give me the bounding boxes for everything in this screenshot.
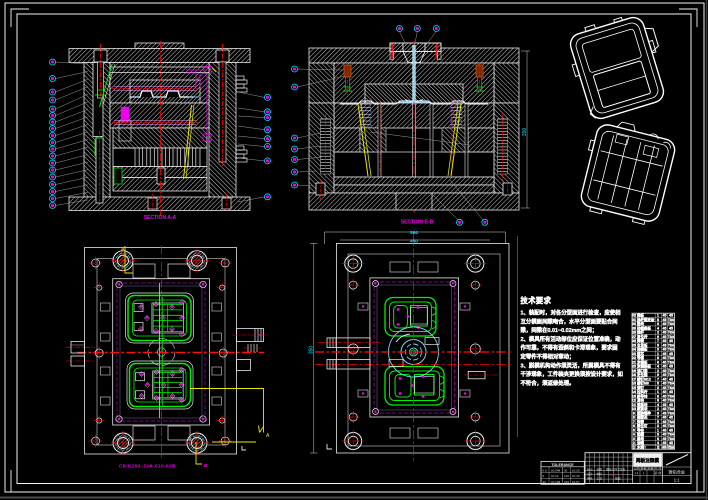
svg-text:动模板: 动模板 (637, 347, 648, 352)
svg-text:更改文件号: 更改文件号 (606, 467, 620, 471)
svg-text:±0.168: ±0.168 (551, 480, 560, 484)
svg-text:垫圈: 垫圈 (637, 432, 645, 437)
svg-text:1:1: 1:1 (674, 478, 680, 483)
svg-text:定模座板: 定模座板 (636, 364, 651, 369)
svg-text:1:1: 1:1 (610, 473, 615, 477)
svg-text:油嘴: 油嘴 (637, 440, 645, 445)
svg-text:弹簧: 弹簧 (637, 338, 645, 343)
svg-text:2、模具所有活动部位应保证位置准确，动: 2、模具所有活动部位应保证位置准确，动 (521, 335, 622, 343)
svg-text:技术要求: 技术要求 (521, 296, 552, 305)
svg-text:1:1: 1:1 (635, 471, 639, 475)
svg-text:C8-K202-JA8-010-02B: C8-K202-JA8-010-02B (119, 464, 176, 469)
svg-text:350: 350 (522, 128, 528, 137)
svg-text:备注: 备注 (668, 444, 675, 449)
svg-text:隙，间隙在0.01~0.02mm之间；: 隙，间隙在0.01~0.02mm之间； (521, 326, 598, 334)
svg-text:SECTION A-A: SECTION A-A (144, 215, 177, 221)
svg-text:互分模面间隙吻合，水平分型面要贴合间: 互分模面间隙吻合，水平分型面要贴合间 (521, 317, 619, 325)
svg-text:数量: 数量 (641, 466, 647, 470)
svg-text:30: 30 (543, 480, 547, 484)
svg-text:1、装配时，对各分型面进行检查，应使相: 1、装配时，对各分型面进行检查，应使相 (521, 309, 622, 317)
svg-text:350: 350 (309, 346, 315, 355)
svg-text:名称: 名称 (640, 444, 647, 449)
svg-text:侧型芯: 侧型芯 (637, 415, 648, 420)
svg-text:工艺: 工艺 (597, 477, 603, 481)
svg-text:±0.048: ±0.048 (551, 468, 560, 472)
svg-text:批准: 批准 (615, 477, 621, 481)
svg-text:定零件不得相对窜动；: 定零件不得相对窜动； (521, 353, 575, 361)
svg-text:导套: 导套 (637, 355, 645, 360)
svg-text:楔紧块: 楔紧块 (637, 406, 648, 411)
svg-text:±0.40: ±0.40 (572, 474, 580, 478)
svg-text:TOLERANCE: TOLERANCE (551, 463, 574, 467)
svg-text:螺钉M8: 螺钉M8 (637, 381, 649, 386)
svg-text:不符合，须返修处理。: 不符合，须返修处理。 (521, 379, 575, 387)
svg-text:作可靠，不得有歪斜和卡滞现象，要求固: 作可靠，不得有歪斜和卡滞现象，要求固 (521, 344, 619, 352)
svg-text:564: 564 (410, 230, 418, 235)
svg-text:铸铝合金: 铸铝合金 (668, 469, 686, 476)
svg-text:SECTION B-B: SECTION B-B (401, 220, 434, 226)
svg-text:3、脱模机构动作须灵活，所属模具不得有: 3、脱模机构动作须灵活，所属模具不得有 (521, 361, 622, 369)
svg-text:第1张: 第1张 (654, 471, 661, 475)
svg-text:两板注塑模: 两板注塑模 (636, 457, 659, 464)
svg-text:定位圈: 定位圈 (636, 372, 648, 377)
svg-text:质量: 质量 (648, 466, 654, 470)
svg-text:±0.12: ±0.12 (551, 474, 559, 478)
svg-text:限位钉: 限位钉 (637, 423, 648, 428)
svg-text:拉料杆: 拉料杆 (637, 389, 648, 394)
svg-text:签名: 签名 (620, 467, 626, 471)
svg-text:±0.26: ±0.26 (572, 468, 580, 472)
svg-text:审核: 审核 (587, 477, 593, 481)
svg-text:450: 450 (410, 238, 418, 243)
svg-text:标记: 标记 (587, 467, 593, 471)
svg-text:处数: 处数 (597, 467, 603, 471)
svg-text:共1张: 共1张 (654, 466, 661, 470)
svg-text:校核: 校核 (597, 472, 603, 476)
svg-text:30: 30 (564, 468, 568, 472)
svg-text:干涉现象，工件装夹更换须按设计要求，如: 干涉现象，工件装夹更换须按设计要求，如 (521, 370, 624, 378)
svg-text:±0.57: ±0.57 (572, 480, 580, 484)
svg-text:比例: 比例 (634, 466, 640, 470)
svg-text:推板: 推板 (637, 313, 645, 318)
svg-text:滑块: 滑块 (637, 398, 645, 403)
svg-text:设计: 设计 (587, 472, 593, 476)
svg-text:315: 315 (564, 480, 569, 484)
svg-text:120: 120 (564, 474, 569, 478)
svg-text:垫块: 垫块 (637, 321, 645, 326)
svg-text:推杆: 推杆 (637, 330, 645, 335)
svg-text:0.5: 0.5 (543, 468, 548, 472)
